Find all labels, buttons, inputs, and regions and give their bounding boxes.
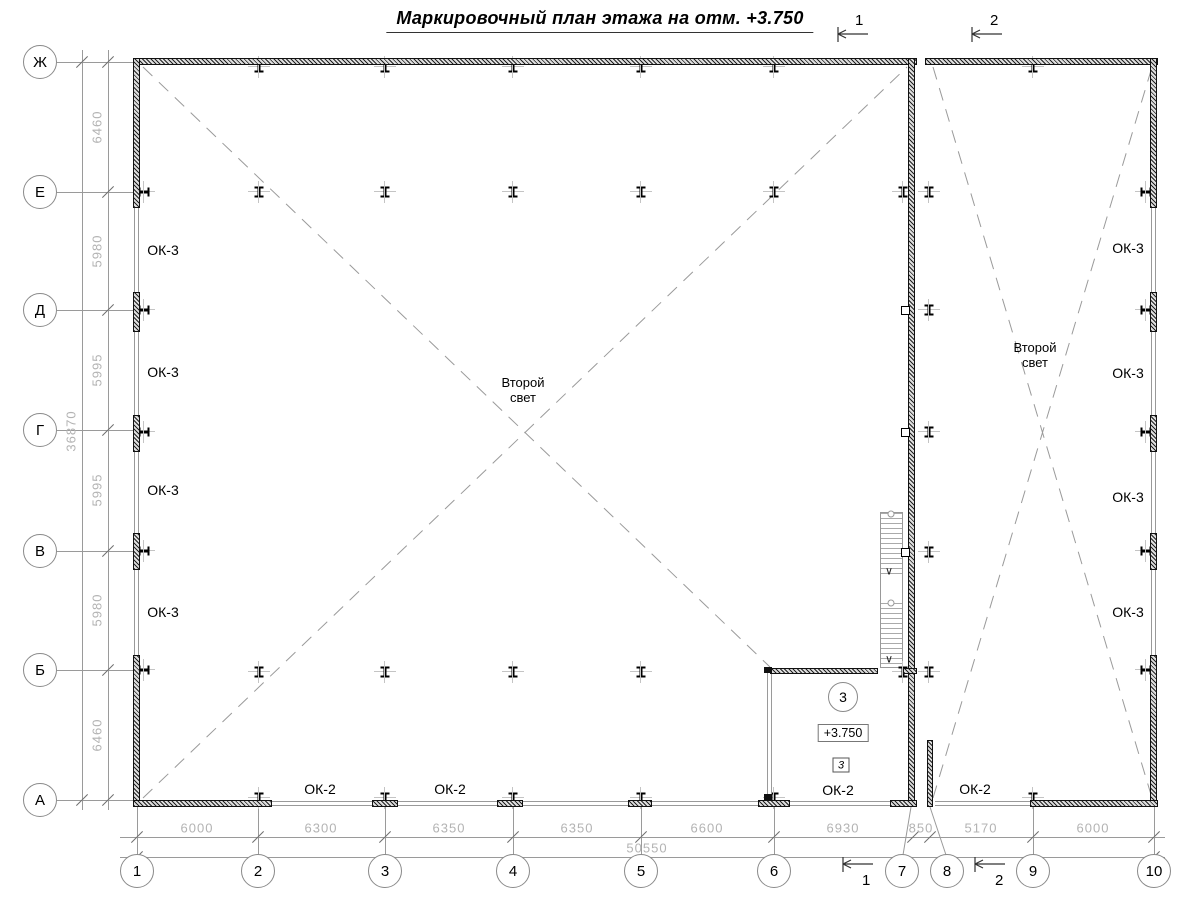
- window-ok3: [134, 452, 139, 533]
- partition-cap: [764, 667, 772, 673]
- dimension-line: [120, 837, 1165, 838]
- dim-bottom: 6930: [827, 821, 860, 836]
- dim-bottom: 6350: [561, 821, 594, 836]
- col-axis-bubble: 3: [368, 854, 402, 888]
- dim-bottom-total: 50550: [626, 841, 667, 856]
- square-column: [901, 306, 910, 315]
- label-ok3: ОК-3: [1112, 489, 1144, 505]
- double-height-diagonals: [0, 0, 1200, 900]
- i-beam-icon: [509, 667, 518, 678]
- wall-bottom-right: [1030, 800, 1158, 807]
- row-axis-label: Г: [36, 422, 44, 439]
- steel-column-symbol: [374, 181, 396, 203]
- elevation-mark: +3.750: [818, 724, 869, 742]
- window-ok3: [134, 570, 139, 655]
- extension-line: [1033, 805, 1034, 855]
- wall-right-bldg-left-pier: [927, 740, 933, 807]
- second-light-note: Второй свет: [494, 376, 552, 406]
- wall-left-pier: [133, 58, 140, 208]
- i-beam-icon: [509, 187, 518, 198]
- col-axis-label: 3: [381, 863, 389, 880]
- wall-right-pier: [1150, 533, 1157, 570]
- room-number-bubble: 3: [828, 682, 858, 712]
- extension-line: [57, 310, 133, 311]
- section-number: 2: [990, 12, 998, 29]
- window-ok3: [1151, 570, 1156, 655]
- extension-line: [513, 805, 514, 855]
- row-axis-label: В: [35, 543, 45, 560]
- col-axis-bubble: 9: [1016, 854, 1050, 888]
- dim-bottom: 6350: [433, 821, 466, 836]
- steel-column-symbol: [918, 421, 940, 443]
- steel-column-symbol: [248, 181, 270, 203]
- i-beam-icon: [255, 667, 264, 678]
- window-ok2: [652, 801, 758, 806]
- section-arrow-2-top: [969, 26, 1003, 46]
- dim-left: 5995: [90, 474, 105, 507]
- extension-line: [57, 670, 133, 671]
- section-arrow-1-top: [835, 26, 869, 46]
- wall-bottom-pier: [890, 800, 917, 807]
- col-axis-label: 1: [133, 863, 141, 880]
- i-beam-icon: [255, 187, 264, 198]
- steel-column-symbol: [502, 661, 524, 683]
- room-top-wall: [770, 668, 878, 674]
- wall-bottom-pier: [758, 800, 790, 807]
- col-axis-label: 7: [898, 863, 906, 880]
- extension-line: [1154, 805, 1155, 855]
- wall-right-pier: [1150, 415, 1157, 452]
- label-ok3: ОК-3: [1112, 240, 1144, 256]
- stair-post-dot: [888, 600, 895, 607]
- col-axis-bubble: 6: [757, 854, 791, 888]
- wall-bottom-pier: [133, 800, 272, 807]
- dim-bottom: 6600: [691, 821, 724, 836]
- wall-left-pier: [133, 533, 140, 570]
- row-axis-bubble: Е: [23, 175, 57, 209]
- steel-column-symbol: [918, 541, 940, 563]
- extension-line: [57, 62, 133, 63]
- wall-bottom-pier: [628, 800, 652, 807]
- window-ok3: [1151, 332, 1156, 415]
- col-axis-label: 5: [637, 863, 645, 880]
- label-ok3: ОК-3: [147, 482, 179, 498]
- window-ok3: [134, 208, 139, 292]
- dim-left: 5980: [90, 235, 105, 268]
- steel-column-symbol: [502, 181, 524, 203]
- i-beam-icon: [637, 187, 646, 198]
- wall-top-left-building: [133, 58, 917, 65]
- label-ok3: ОК-3: [1112, 365, 1144, 381]
- steel-column-symbol: [248, 661, 270, 683]
- row-axis-bubble: Ж: [23, 45, 57, 79]
- wall-left-pier: [133, 655, 140, 807]
- extension-line: [137, 805, 138, 855]
- i-beam-icon: [381, 667, 390, 678]
- i-beam-icon: [770, 187, 779, 198]
- dim-left: 6460: [90, 719, 105, 752]
- wall-right-pier: [1150, 58, 1157, 208]
- i-beam-icon: [139, 428, 150, 437]
- extension-line: [258, 805, 259, 855]
- window-ok2: [935, 801, 1030, 806]
- row-axis-bubble: А: [23, 783, 57, 817]
- wall-bottom-pier: [372, 800, 398, 807]
- i-beam-icon: [139, 306, 150, 315]
- row-axis-label: Б: [35, 662, 45, 679]
- col-axis-bubble: 4: [496, 854, 530, 888]
- row-axis-bubble: Д: [23, 293, 57, 327]
- dim-left-total: 36870: [64, 410, 79, 451]
- extension-line: [57, 551, 133, 552]
- label-ok3: ОК-3: [1112, 604, 1144, 620]
- type-mark: 3: [838, 759, 844, 771]
- label-ok3: ОК-3: [147, 242, 179, 258]
- staircase: [880, 512, 903, 668]
- col-axis-bubble: 1: [120, 854, 154, 888]
- dim-bottom: 6300: [305, 821, 338, 836]
- i-beam-icon: [925, 547, 934, 558]
- col-axis-label: 4: [509, 863, 517, 880]
- window-ok3: [134, 332, 139, 415]
- i-beam-icon: [381, 187, 390, 198]
- stair-down-arrow: ∨: [885, 653, 893, 666]
- label-ok2: ОК-2: [304, 781, 336, 797]
- window-ok2: [523, 801, 628, 806]
- window-ok2: [272, 801, 372, 806]
- floor-plan-drawing: Маркировочный план этажа на отм. +3.750 …: [0, 0, 1200, 900]
- col-axis-label: 2: [254, 863, 262, 880]
- row-axis-label: Д: [35, 302, 45, 319]
- col-axis-bubble: 2: [241, 854, 275, 888]
- steel-column-symbol: [374, 661, 396, 683]
- steel-column-symbol: [630, 661, 652, 683]
- label-ok3: ОК-3: [147, 364, 179, 380]
- type-mark-box: 3: [833, 758, 850, 773]
- row-axis-label: Е: [35, 184, 45, 201]
- col-axis-bubble: 7: [885, 854, 919, 888]
- row-axis-label: Ж: [33, 54, 47, 71]
- steel-column-symbol: [918, 299, 940, 321]
- square-column: [901, 428, 910, 437]
- col-axis-label: 9: [1029, 863, 1037, 880]
- col-axis-bubble: 8: [930, 854, 964, 888]
- wall-left-pier: [133, 292, 140, 332]
- room-left-partition: [767, 670, 772, 800]
- label-ok3: ОК-3: [147, 604, 179, 620]
- steel-column-symbol: [630, 181, 652, 203]
- i-beam-icon: [925, 427, 934, 438]
- i-beam-icon: [139, 547, 150, 556]
- dim-bottom: 850: [909, 821, 934, 836]
- square-column: [901, 548, 910, 557]
- dim-left: 5995: [90, 354, 105, 387]
- row-axis-bubble: В: [23, 534, 57, 568]
- i-beam-icon: [637, 667, 646, 678]
- col-axis-bubble: 10: [1137, 854, 1171, 888]
- i-beam-icon: [139, 188, 150, 197]
- stair-down-arrow: ∨: [885, 565, 893, 578]
- stair-post-dot: [888, 511, 895, 518]
- col-axis-label: 6: [770, 863, 778, 880]
- second-light-note: Второй свет: [1006, 341, 1064, 371]
- label-ok2: ОК-2: [822, 782, 854, 798]
- room-top-wall: [903, 668, 917, 674]
- window-ok3: [1151, 452, 1156, 533]
- wall-right-pier: [1150, 292, 1157, 332]
- dim-bottom: 5170: [965, 821, 998, 836]
- label-ok2: ОК-2: [434, 781, 466, 797]
- i-beam-icon: [899, 187, 908, 198]
- steel-column-symbol: [763, 181, 785, 203]
- window-ok3: [1151, 208, 1156, 292]
- row-axis-label: А: [35, 792, 45, 809]
- row-axis-bubble: Г: [23, 413, 57, 447]
- dim-bottom: 6000: [181, 821, 214, 836]
- row-axis-bubble: Б: [23, 653, 57, 687]
- section-number: 2: [995, 872, 1003, 889]
- wall-bottom-pier: [497, 800, 523, 807]
- col-axis-label: 8: [943, 863, 951, 880]
- dim-left: 5980: [90, 594, 105, 627]
- window-ok2: [398, 801, 497, 806]
- dim-bottom: 6000: [1077, 821, 1110, 836]
- i-beam-icon: [925, 305, 934, 316]
- extension-line: [774, 805, 775, 855]
- wall-top-right-building: [925, 58, 1158, 65]
- label-ok2: ОК-2: [959, 781, 991, 797]
- wall-right-pier: [1150, 655, 1157, 807]
- i-beam-icon: [925, 187, 934, 198]
- partition-cap: [764, 794, 772, 800]
- steel-column-symbol: [918, 181, 940, 203]
- section-number: 1: [862, 872, 870, 889]
- steel-column-symbol: [918, 661, 940, 683]
- col-axis-label: 10: [1146, 863, 1163, 880]
- room-number: 3: [839, 689, 847, 705]
- window-ok2: [790, 801, 890, 806]
- wall-left-pier: [133, 415, 140, 452]
- dim-left: 6460: [90, 111, 105, 144]
- i-beam-icon: [925, 667, 934, 678]
- col-axis-bubble: 5: [624, 854, 658, 888]
- section-number: 1: [855, 12, 863, 29]
- extension-line: [57, 192, 133, 193]
- extension-line: [385, 805, 386, 855]
- extension-line: [57, 800, 133, 801]
- i-beam-icon: [139, 666, 150, 675]
